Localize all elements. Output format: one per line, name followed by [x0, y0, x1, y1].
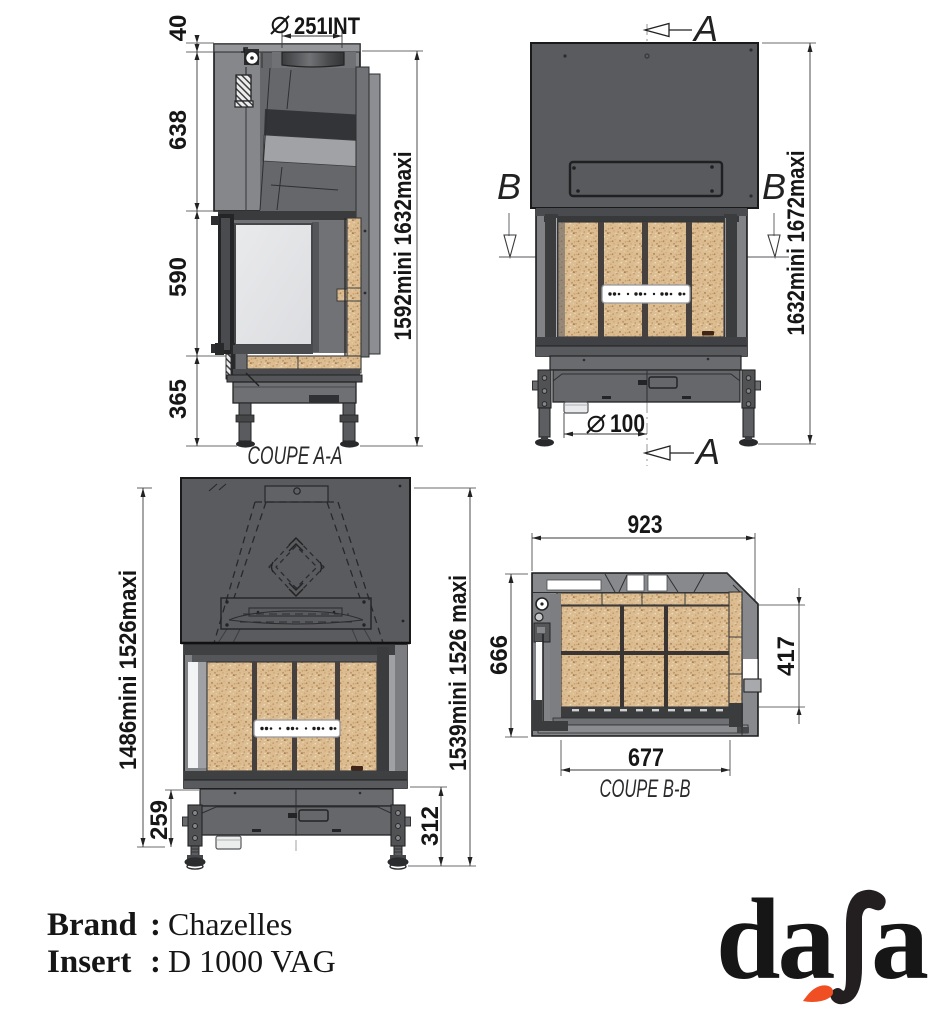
svg-text:312: 312: [417, 806, 444, 846]
svg-text:Chazelles: Chazelles: [168, 906, 292, 942]
svg-text:590: 590: [165, 257, 192, 297]
svg-text:B: B: [497, 166, 521, 207]
svg-text:A: A: [694, 431, 720, 472]
svg-text:1592mini 1632maxi: 1592mini 1632maxi: [390, 152, 417, 341]
svg-text:COUPE A-A: COUPE A-A: [248, 442, 343, 470]
svg-text::: :: [150, 944, 161, 980]
svg-text:417: 417: [773, 636, 800, 676]
svg-text:COUPE B-B: COUPE B-B: [600, 775, 691, 803]
svg-text::: :: [150, 907, 161, 943]
svg-text:1539mini 1526 maxi: 1539mini 1526 maxi: [445, 575, 472, 771]
svg-text:Brand: Brand: [47, 907, 137, 943]
svg-text:D 1000 VAG: D 1000 VAG: [168, 943, 336, 979]
svg-text:666: 666: [486, 635, 513, 675]
svg-text:40: 40: [165, 15, 192, 42]
svg-text:da: da: [716, 876, 835, 1004]
svg-text:365: 365: [165, 379, 192, 419]
svg-text:259: 259: [146, 800, 173, 840]
svg-text:1486mini 1526maxi: 1486mini 1526maxi: [115, 570, 142, 770]
svg-text:251INT: 251INT: [294, 13, 360, 40]
svg-text:1632mini 1672maxi: 1632mini 1672maxi: [783, 151, 810, 336]
svg-text:677: 677: [628, 744, 664, 772]
svg-text:638: 638: [165, 110, 192, 150]
svg-text:Insert: Insert: [47, 944, 131, 980]
svg-text:923: 923: [628, 511, 663, 539]
svg-text:100: 100: [610, 410, 645, 438]
